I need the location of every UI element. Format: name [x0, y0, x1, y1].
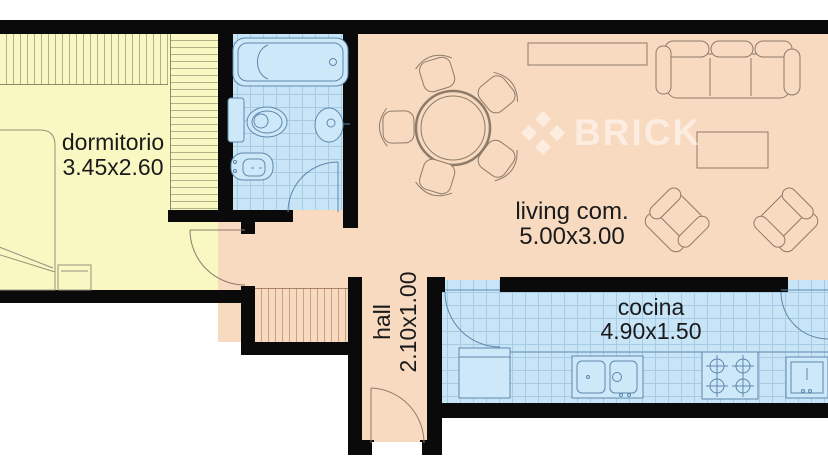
dishwasher [786, 357, 828, 398]
stove [702, 352, 758, 399]
entry-door [371, 388, 424, 443]
sofa [656, 41, 800, 98]
bathtub [233, 38, 348, 86]
armchair [640, 185, 712, 257]
armchair [751, 185, 823, 257]
dining-chair [413, 51, 459, 95]
sideboard [528, 43, 647, 65]
living-room-label: living com. 5.00x3.00 [515, 199, 628, 249]
dining-chair [473, 134, 523, 185]
kitchen-sink [572, 356, 643, 398]
kitchen-label: cocina 4.90x1.50 [600, 295, 701, 343]
dining-chair [379, 108, 414, 147]
bedroom-door [190, 230, 245, 285]
bedroom-size: 3.45x2.60 [62, 154, 163, 180]
nightstand [58, 265, 91, 290]
kitchen-name: cocina [618, 294, 684, 320]
dining-chair [413, 156, 459, 200]
hall-name: hall [369, 304, 395, 340]
living-room-size: 5.00x3.00 [519, 223, 624, 250]
furniture-layer [0, 0, 828, 469]
brick-diamond-logo-icon [520, 110, 566, 156]
bedroom-name: dormitorio [62, 129, 164, 155]
kitchen-door-left [445, 290, 500, 347]
floor-plan: dormitorio 3.45x2.60 living com. 5.00x3.… [0, 0, 828, 469]
living-room-name: living com. [515, 198, 628, 225]
toilet [228, 98, 287, 142]
kitchen-door-right [781, 290, 828, 339]
fridge [459, 348, 510, 398]
hall-label: hall 2.10x1.00 [369, 271, 421, 372]
watermark: BRICK [520, 110, 701, 156]
bedroom-label: dormitorio 3.45x2.60 [62, 130, 164, 180]
kitchen-size: 4.90x1.50 [600, 318, 701, 344]
bidet [231, 153, 273, 180]
bathroom-door [288, 162, 338, 212]
bed [0, 130, 55, 290]
watermark-brand-text: BRICK [574, 112, 701, 154]
washbasin [315, 108, 350, 142]
coffee-table [697, 132, 768, 168]
hall-size: 2.10x1.00 [395, 271, 421, 372]
dining-table [416, 91, 490, 165]
